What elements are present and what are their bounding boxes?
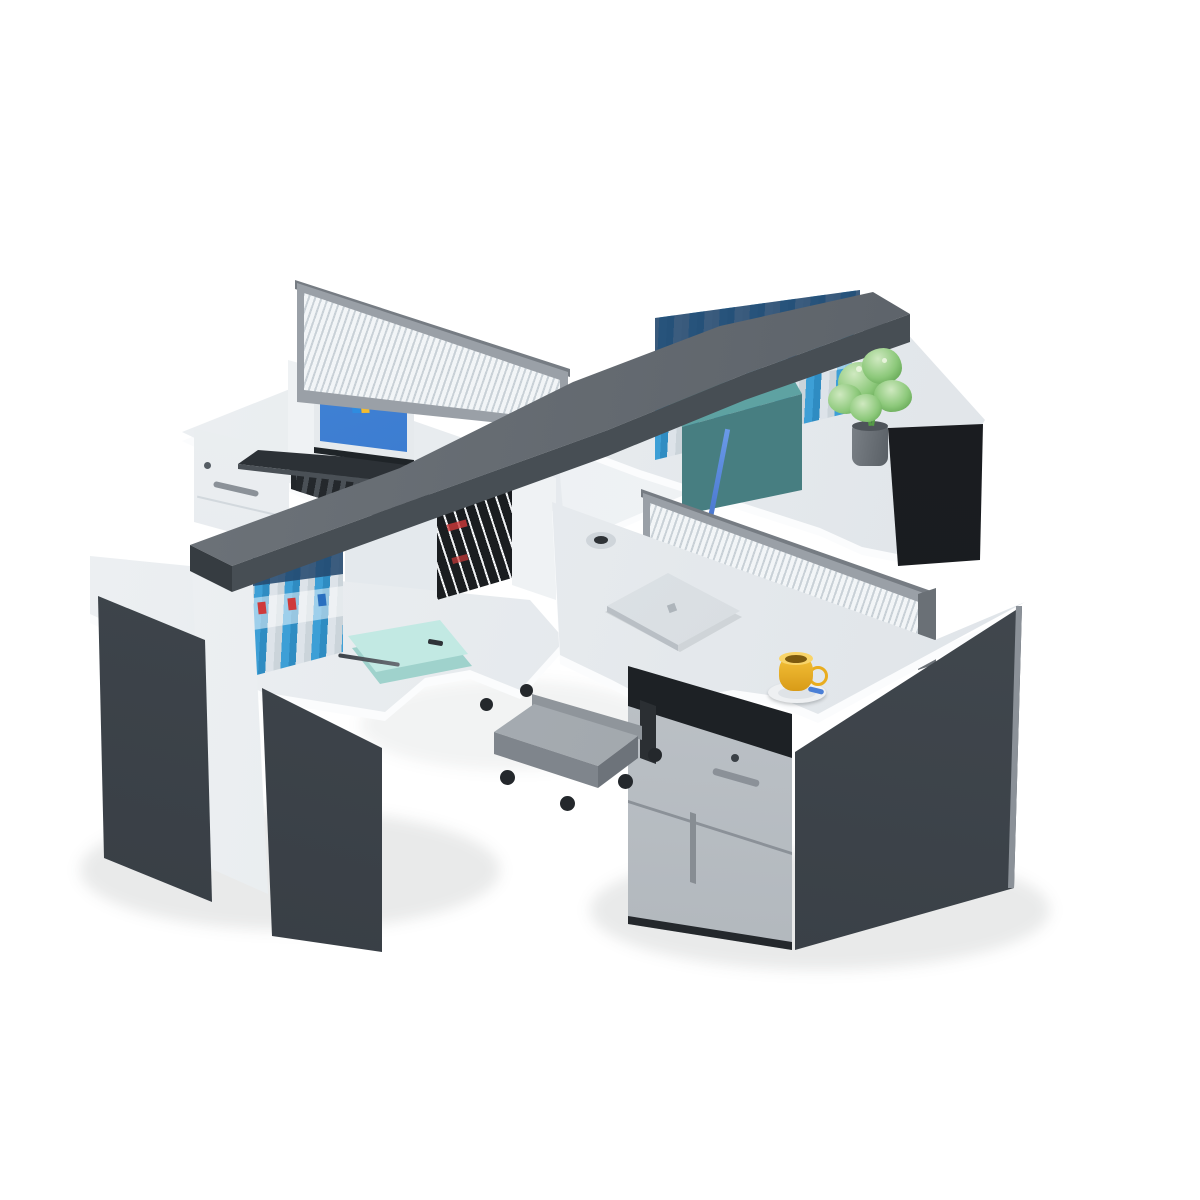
caster-3 <box>618 774 633 789</box>
cable-grommet-hole <box>594 536 608 544</box>
cup-coffee <box>785 655 807 663</box>
caster-4 <box>648 748 662 762</box>
plant-highlight-2 <box>882 358 887 363</box>
binder-label-blue-2 <box>317 594 326 607</box>
pedestal-lock <box>731 754 739 762</box>
caster-2 <box>560 796 575 811</box>
rear-left-pedestal-keyhole <box>204 462 211 469</box>
caster-1 <box>500 770 515 785</box>
plant-foliage-5 <box>850 394 882 422</box>
plant-foliage-2 <box>862 348 902 384</box>
binder-label-red-3 <box>257 602 266 615</box>
binder-label-red-4 <box>287 598 296 611</box>
desk-caster-2 <box>520 684 533 697</box>
plant-highlight-1 <box>856 366 862 372</box>
desk-caster-1 <box>480 698 493 711</box>
workstation-product-photo <box>0 0 1200 1200</box>
